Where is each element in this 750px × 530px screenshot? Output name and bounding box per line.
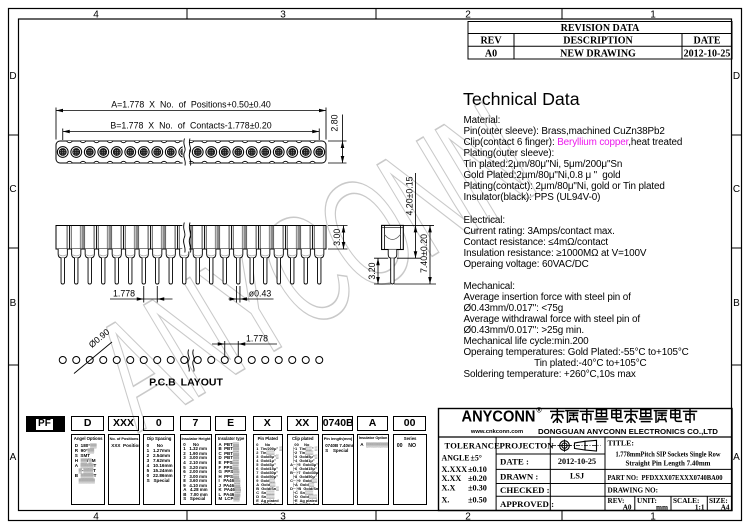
svg-text:CHECKED :: CHECKED : [500, 485, 550, 495]
svg-text:mm: mm [656, 504, 668, 512]
svg-text:2012-10-25: 2012-10-25 [558, 457, 596, 466]
svg-text:1.778mmPitch SIP Sockets Singl: 1.778mmPitch SIP Sockets Single Row [616, 450, 721, 459]
svg-text:®: ® [537, 407, 543, 415]
svg-text:TITLE:: TITLE: [608, 439, 634, 448]
svg-text:A4: A4 [721, 504, 730, 512]
svg-text:APPROVED :: APPROVED : [500, 499, 554, 509]
svg-text:±0.20: ±0.20 [468, 474, 487, 483]
svg-text:www.cnkconn.com: www.cnkconn.com [470, 429, 523, 435]
svg-text:±0.30: ±0.30 [468, 484, 487, 493]
svg-text:LSJ: LSJ [570, 472, 584, 481]
svg-text:1:1: 1:1 [695, 504, 705, 512]
svg-text:ANYCONN: ANYCONN [462, 409, 536, 426]
svg-text:Straight Pin Length 7.40mm: Straight Pin Length 7.40mm [626, 459, 712, 468]
svg-text:TOLERANCE: TOLERANCE [445, 441, 501, 451]
svg-text:±5°: ±5° [471, 454, 482, 463]
svg-text:X.: X. [442, 496, 450, 505]
svg-text:PART NO: PFDXXX07EXXX0740BA00: PART NO: PFDXXX07EXXX0740BA00 [608, 473, 723, 482]
svg-text:±0.10: ±0.10 [468, 465, 487, 474]
svg-text:A0: A0 [623, 504, 632, 512]
svg-text:UNIT:: UNIT: [637, 497, 657, 505]
svg-text:X.XXX: X.XXX [442, 465, 468, 474]
svg-text:PROJECTON: PROJECTON [500, 441, 555, 451]
svg-text:X.XX: X.XX [442, 474, 462, 483]
svg-text:DATE :: DATE : [500, 457, 529, 467]
svg-text:ANGLE: ANGLE [442, 454, 470, 463]
svg-text:DRAWN :: DRAWN : [500, 472, 538, 482]
svg-text:X.X: X.X [442, 484, 456, 493]
svg-text:DONGGUAN ANYCONN ELECTRONICS: DONGGUAN ANYCONN ELECTRONICS CO.,LTD [538, 427, 719, 436]
svg-text:DRAWING NO:: DRAWING NO: [608, 487, 659, 495]
svg-text:±0.50: ±0.50 [468, 496, 487, 505]
